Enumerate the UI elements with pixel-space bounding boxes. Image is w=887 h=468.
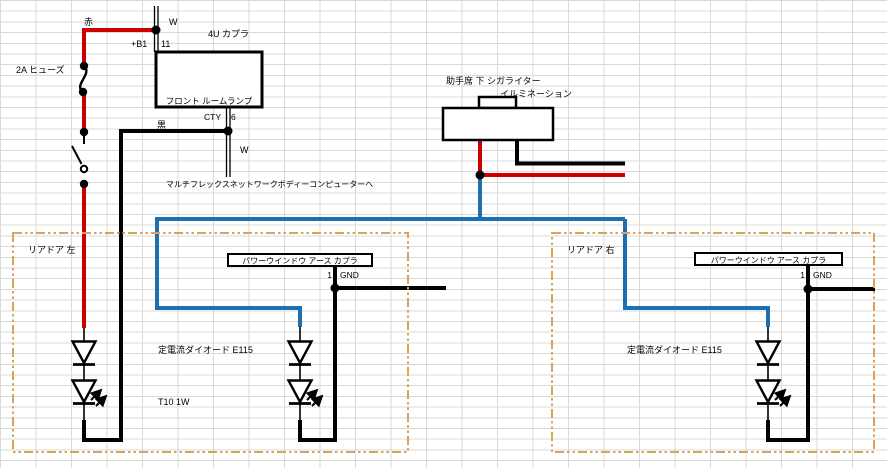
pin-6-label: 6	[231, 112, 236, 122]
diode-note-right: 定電流ダイオード E115	[627, 344, 722, 355]
black-wire-cigar-branch	[517, 140, 625, 164]
switch-symbol	[72, 128, 88, 188]
led-emission-arrow	[780, 396, 790, 406]
led-symbol	[289, 381, 323, 407]
junction-dot	[804, 285, 813, 294]
blue-wire-right-run	[625, 219, 768, 327]
diode-triangle	[289, 342, 312, 364]
diode-symbol	[73, 342, 96, 365]
switch-contact-circle	[81, 166, 87, 172]
bulb-note: T10 1W	[158, 397, 190, 407]
diode-triangle	[73, 342, 96, 364]
junction-dot	[152, 26, 161, 35]
white-wire-bottom	[227, 107, 231, 177]
led-emission-arrow	[91, 390, 101, 400]
multiplex-note: マルチフレックスネットワークボディーコンピューターへ	[166, 179, 373, 189]
gnd-label-right: GND	[813, 270, 832, 280]
switch-blade	[72, 146, 82, 164]
diode-symbol	[757, 342, 780, 365]
led-emission-arrow	[775, 390, 785, 400]
gnd-label-left: GND	[340, 270, 359, 280]
pin-1-label-left: 1	[327, 270, 332, 280]
led-symbol	[757, 381, 791, 407]
cigar-title-line1: 助手席 下 シガライター	[446, 75, 541, 86]
cigar-lighter-box	[443, 108, 553, 140]
room-lamp-box-label: フロント ルームランプ	[166, 96, 253, 106]
fuse-label: 2A ヒューズ	[16, 64, 65, 75]
pw-coupler-label-left: パワーウインドウ アース カプラ	[242, 257, 358, 266]
led-emission-arrow	[96, 396, 106, 406]
spreadsheet-grid: 赤 W 2A ヒューズ 4U カプラ +B1 11 フロント ルームランプ CT…	[0, 0, 887, 468]
black-wire-label: 黒	[157, 120, 166, 130]
blue-wires	[157, 175, 768, 327]
pin-1-label-right: 1	[800, 270, 805, 280]
diode-triangle	[757, 342, 780, 364]
rear-door-right-title: リアドア 右	[567, 244, 615, 255]
junction-dot	[476, 171, 485, 180]
white-wire-label-bottom: W	[240, 145, 249, 155]
coupler-4u-label: 4U カプラ	[208, 29, 249, 39]
red-wire-label: 赤	[84, 17, 93, 27]
blue-wire-left-run	[157, 219, 625, 327]
wiring-diagram: 赤 W 2A ヒューズ 4U カプラ +B1 11 フロント ルームランプ CT…	[0, 0, 887, 468]
white-wire-label-top: W	[169, 17, 178, 27]
led-symbol	[73, 381, 107, 407]
junction-dot	[224, 127, 233, 136]
switch-terminal-dot	[80, 180, 88, 188]
led-emission-arrow	[312, 396, 322, 406]
rear-door-left-title: リアドア 左	[28, 244, 76, 255]
diode-note-left: 定電流ダイオード E115	[158, 344, 253, 355]
junction-dot	[331, 284, 340, 293]
pin-b1-label: +B1	[131, 39, 147, 49]
pin-11-label: 11	[161, 39, 170, 49]
fuse-symbol	[79, 62, 88, 96]
led-emission-arrow	[307, 390, 317, 400]
diode-symbol	[289, 342, 312, 365]
pw-coupler-label-right: パワーウインドウ アース カプラ	[711, 256, 827, 265]
cigar-title-line2: イルミネーション	[500, 89, 572, 99]
connector-cty-label: CTY	[204, 112, 221, 122]
